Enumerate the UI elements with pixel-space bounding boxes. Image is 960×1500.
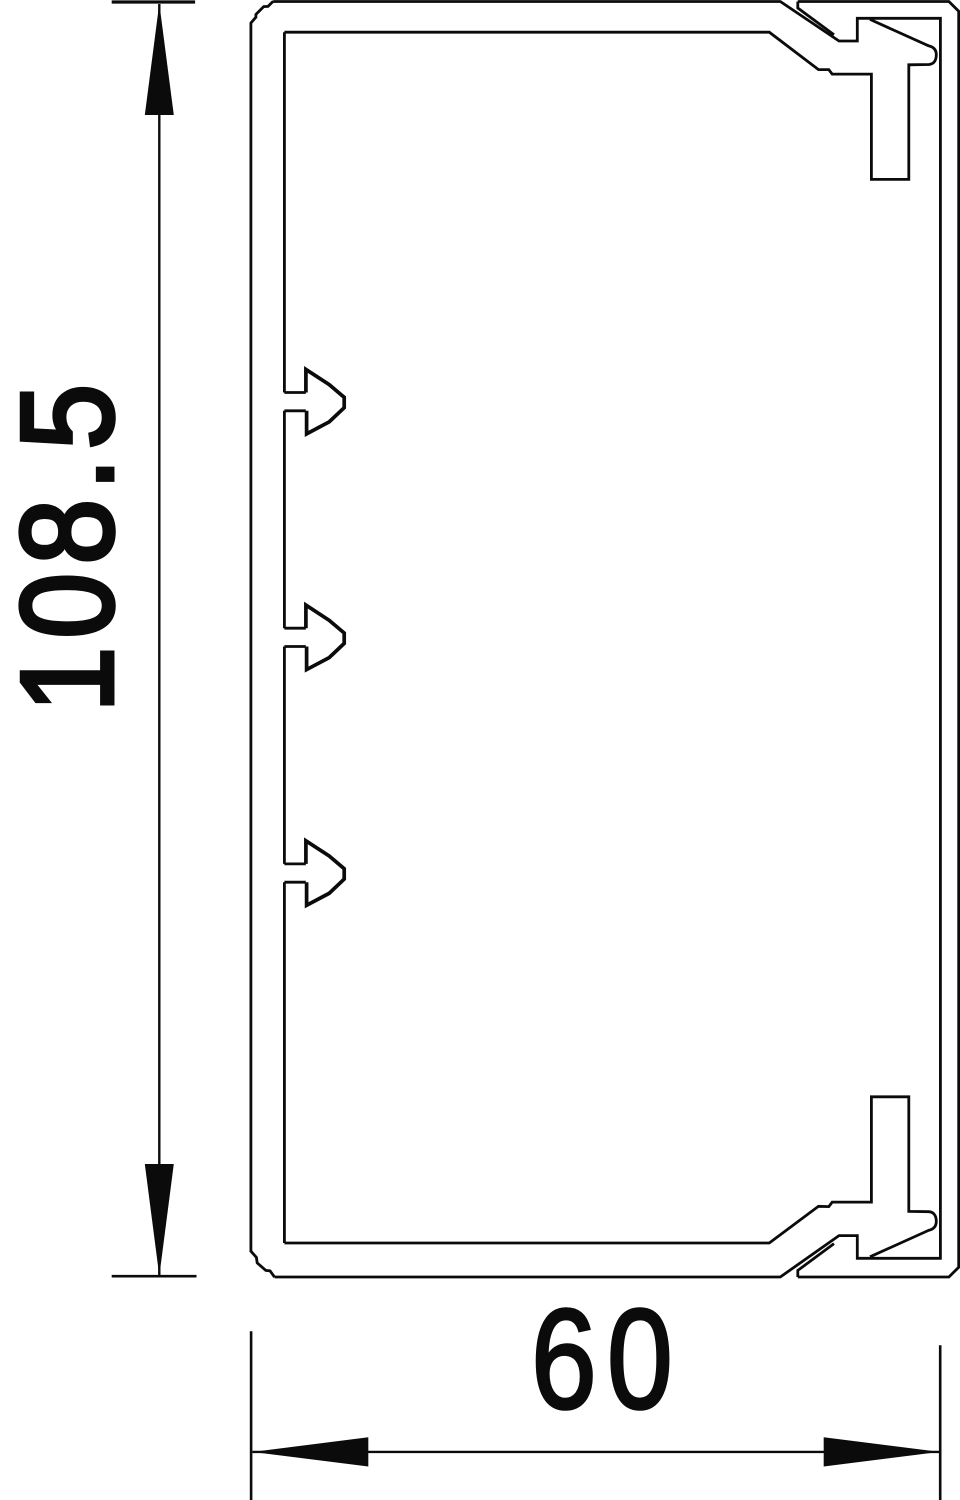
svg-text:108.5: 108.5 (0, 376, 141, 713)
svg-text:60: 60 (531, 1280, 683, 1439)
